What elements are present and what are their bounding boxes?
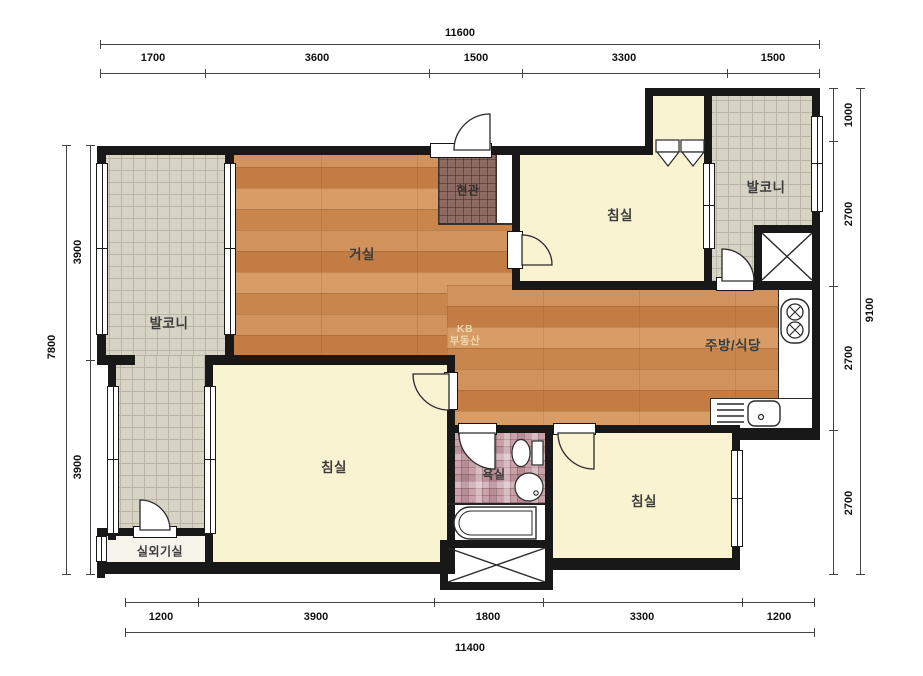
dim-right-seg: 2700 xyxy=(843,491,855,515)
entrance-step-line xyxy=(438,223,512,225)
dim-top-total: 11600 xyxy=(445,27,475,39)
room-label-balcony-right: 발코니 xyxy=(747,176,786,196)
wall xyxy=(440,582,553,590)
dim-left-seg: 3900 xyxy=(72,240,84,264)
wall xyxy=(97,146,430,155)
dim-bottom-seg: 1200 xyxy=(149,611,173,623)
wall xyxy=(812,88,820,118)
dim-top-seg: 3600 xyxy=(305,52,329,64)
window xyxy=(96,248,108,335)
room-label-entrance: 현관 xyxy=(456,182,479,199)
dim-bottom-seg: 3900 xyxy=(304,611,328,623)
window xyxy=(811,163,823,212)
wall xyxy=(225,146,234,163)
wall xyxy=(545,558,740,570)
room-label-balcony-left: 발코니 xyxy=(150,312,189,332)
wall xyxy=(512,281,716,290)
door-opening-bedroom-right xyxy=(553,423,596,435)
room-label-kitchen: 주방/식당 xyxy=(705,334,761,354)
wall xyxy=(97,146,106,163)
window xyxy=(96,163,108,250)
kitchen-sink-counter xyxy=(710,398,812,428)
dim-bottom-total: 11400 xyxy=(455,642,485,654)
room-label-bedroom-left: 침실 xyxy=(321,456,347,476)
wall xyxy=(812,210,820,440)
balcony-left-upper-floor xyxy=(97,146,234,365)
wall xyxy=(704,96,712,163)
dim-right-seg: 1000 xyxy=(843,103,855,127)
window xyxy=(731,450,743,500)
wall xyxy=(97,562,455,574)
wall xyxy=(512,146,520,233)
kb-watermark-line2: 부동산 xyxy=(450,335,480,347)
dim-left-seg: 3900 xyxy=(72,455,84,479)
kb-watermark-line1: KB xyxy=(450,323,480,335)
door-opening-bedroom-left xyxy=(444,372,458,410)
bath-tub-divider xyxy=(447,503,545,505)
dim-bottom-seg: 1200 xyxy=(767,611,791,623)
closet-top-floor xyxy=(645,88,712,155)
window xyxy=(811,116,823,165)
wall xyxy=(704,88,820,96)
window xyxy=(107,459,119,534)
dim-top-seg: 1500 xyxy=(761,52,785,64)
room-label-outdoor-unit: 실외기실 xyxy=(137,543,183,560)
dim-bottom-seg: 1800 xyxy=(476,611,500,623)
wall xyxy=(97,355,135,365)
wall xyxy=(205,355,455,365)
door-opening-balcony-right xyxy=(716,277,754,291)
door-opening-bedroom-top xyxy=(507,231,523,269)
wall xyxy=(645,88,653,155)
door-opening-outdoor-unit xyxy=(133,526,177,538)
wall xyxy=(447,425,458,433)
window xyxy=(703,163,715,207)
wall xyxy=(108,362,116,386)
wall xyxy=(205,365,213,386)
kb-watermark: KB 부동산 xyxy=(450,323,480,347)
wall xyxy=(732,428,820,440)
window xyxy=(731,498,743,547)
wall xyxy=(447,355,455,372)
window xyxy=(224,248,236,335)
room-label-living: 거실 xyxy=(349,243,375,263)
door-opening-bathroom xyxy=(458,423,497,435)
wall xyxy=(440,540,553,548)
dim-bottom-seg: 3300 xyxy=(630,611,654,623)
kitchen-counter xyxy=(778,290,812,398)
room-label-bathroom: 욕실 xyxy=(482,466,505,483)
dim-right-seg: 2700 xyxy=(843,346,855,370)
dim-top-seg: 3300 xyxy=(612,52,636,64)
entrance-shoe-cabinet xyxy=(497,150,512,225)
room-label-bedroom-top: 침실 xyxy=(607,204,633,224)
window xyxy=(224,163,236,250)
wall xyxy=(447,410,455,574)
floorplan-canvas: 거실 현관 침실 발코니 주방/식당 발코니 침실 욕실 침실 실외기실 KB … xyxy=(0,0,923,676)
door-opening-entry xyxy=(430,143,492,158)
window xyxy=(96,536,107,562)
wall xyxy=(754,225,812,233)
wall xyxy=(754,281,812,290)
window xyxy=(204,459,216,534)
window xyxy=(107,386,119,461)
dim-top-seg: 1700 xyxy=(141,52,165,64)
dim-left-total: 7800 xyxy=(46,335,58,359)
room-label-bedroom-right: 침실 xyxy=(631,490,657,510)
dim-right-seg: 2700 xyxy=(843,202,855,226)
balcony-left-lower-floor xyxy=(108,355,213,540)
wall xyxy=(645,88,712,96)
wall xyxy=(596,425,740,433)
window xyxy=(703,205,715,249)
window xyxy=(204,386,216,461)
dim-top-seg: 1500 xyxy=(464,52,488,64)
dim-right-total: 9100 xyxy=(864,298,876,322)
